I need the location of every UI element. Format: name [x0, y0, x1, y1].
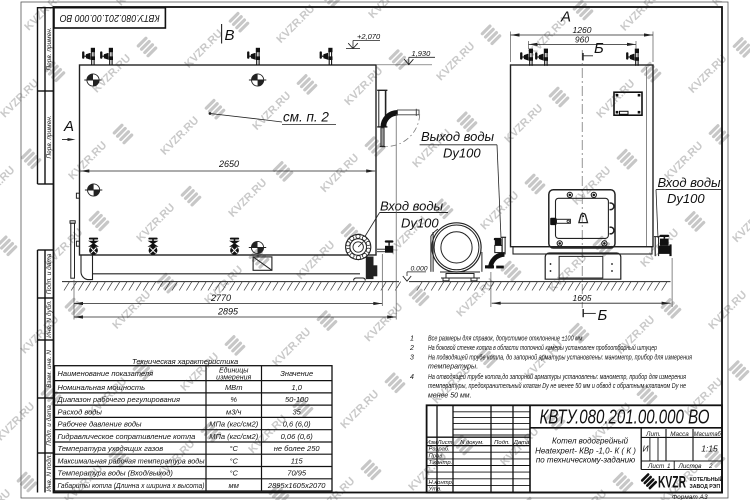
svg-text:1,930: 1,930	[412, 49, 432, 58]
svg-text:КОТЕЛЬНЫЙ: КОТЕЛЬНЫЙ	[690, 475, 724, 483]
svg-text:МПа (кгс/см2): МПа (кгс/см2)	[209, 420, 258, 429]
svg-text:см. п. 2: см. п. 2	[283, 110, 329, 125]
svg-text:Б: Б	[598, 307, 608, 324]
svg-text:115: 115	[291, 456, 304, 465]
svg-text:МПа (кгс/см2): МПа (кгс/см2)	[209, 432, 258, 441]
svg-text:Все размеры для справок, допус: Все размеры для справок, допустимое откл…	[428, 335, 584, 343]
svg-text:0.000: 0.000	[411, 266, 428, 273]
svg-text:70/95: 70/95	[287, 469, 307, 478]
svg-text:Диапазон рабочего регулировани: Диапазон рабочего регулирования	[57, 395, 180, 404]
svg-text:35: 35	[293, 407, 302, 416]
svg-text:0,6 (6,0): 0,6 (6,0)	[283, 420, 311, 429]
svg-text:Рабочее давление воды: Рабочее давление воды	[58, 420, 143, 429]
svg-text:Выход воды: Выход воды	[421, 129, 495, 144]
svg-text:И: И	[642, 444, 649, 454]
svg-text:измерения: измерения	[216, 375, 251, 382]
svg-text:Разраб.: Разраб.	[429, 447, 450, 453]
svg-text:Dy100: Dy100	[443, 146, 481, 161]
svg-text:960: 960	[575, 34, 589, 44]
svg-text:1:15: 1:15	[701, 444, 718, 454]
svg-text:Б: Б	[594, 40, 604, 57]
svg-text:50-100: 50-100	[285, 395, 309, 404]
svg-text:°С: °С	[229, 444, 238, 453]
svg-text:Dy100: Dy100	[401, 216, 439, 231]
svg-text:Пров.: Пров.	[429, 453, 445, 459]
svg-text:менее 50 мм.: менее 50 мм.	[428, 393, 472, 400]
svg-text:Инв. N подл.: Инв. N подл.	[45, 454, 53, 492]
svg-text:Изм: Изм	[426, 440, 437, 446]
svg-text:температуры.: температуры.	[428, 364, 478, 371]
svg-text:Расход воды: Расход воды	[58, 407, 103, 416]
svg-text:Подп.: Подп.	[494, 440, 510, 446]
svg-text:°С: °С	[229, 469, 238, 478]
svg-text:Котел водогрейный: Котел водогрейный	[552, 437, 629, 446]
svg-text:Дата: Дата	[513, 440, 530, 446]
svg-text:мм: мм	[229, 481, 239, 490]
svg-text:Heatexpert- КВр -1,0- К ( К ): Heatexpert- КВр -1,0- К ( К )	[535, 447, 636, 456]
svg-text:Н.контр.: Н.контр.	[429, 480, 454, 486]
svg-text:Инв. N дубл.: Инв. N дубл.	[45, 300, 53, 338]
svg-text:Масса: Масса	[670, 431, 689, 438]
svg-text:На подводящей трубе котла, д: На подводящей трубе котла, до запорной а…	[428, 353, 692, 361]
svg-text:температуры, предохранительный: температуры, предохранительный клапан Dy…	[428, 382, 686, 390]
svg-text:2: 2	[409, 345, 414, 352]
svg-text:Dy100: Dy100	[667, 191, 705, 206]
svg-text:не более 250: не более 250	[274, 444, 321, 453]
svg-text:Техническая характеристика: Техническая характеристика	[132, 357, 238, 366]
svg-text:2895: 2895	[217, 306, 239, 316]
svg-text:KVZR: KVZR	[658, 473, 686, 492]
svg-text:1605: 1605	[573, 293, 592, 303]
svg-text:Максимальная рабочая температу: Максимальная рабочая температура воды	[58, 456, 205, 465]
svg-text:Т.контр.: Т.контр.	[429, 460, 453, 466]
svg-text:Гидравлическое сопративление к: Гидравлическое сопративление котла	[58, 432, 196, 441]
svg-text:2650: 2650	[218, 159, 239, 169]
svg-text:Номинальная мощность: Номинальная мощность	[58, 383, 146, 392]
svg-text:Формат А3: Формат А3	[672, 494, 708, 500]
svg-text:Перв. примен.: Перв. примен.	[46, 27, 53, 70]
svg-text:%: %	[230, 395, 237, 404]
svg-text:Температура уходящих газов: Температура уходящих газов	[58, 444, 164, 453]
svg-text:Наименование показателя: Наименование показателя	[58, 369, 154, 378]
svg-text:2770: 2770	[210, 293, 231, 303]
svg-text:На боковой стенке котла в обла: На боковой стенке котла в области топочн…	[428, 344, 657, 352]
svg-text:1,0: 1,0	[291, 383, 302, 392]
svg-text:ЗАВОД РЭП: ЗАВОД РЭП	[690, 484, 721, 490]
svg-text:Взам. инв. N: Взам. инв. N	[46, 350, 53, 388]
svg-text:КВТУ.080.201.00.000 ВО: КВТУ.080.201.00.000 ВО	[540, 407, 710, 429]
svg-text:Лист: Лист	[437, 440, 453, 446]
svg-text:Подп. и дата: Подп. и дата	[45, 253, 53, 294]
svg-text:МВт: МВт	[225, 383, 243, 392]
svg-text:Значение: Значение	[280, 369, 313, 378]
svg-text:Габариты котла (Длинна х ширин: Габариты котла (Длинна х ширина х высота…	[58, 481, 205, 490]
svg-text:А: А	[560, 9, 571, 26]
svg-text:по техническому-заданию: по техническому-заданию	[536, 456, 635, 465]
svg-text:А: А	[63, 118, 74, 135]
svg-text:0,06 (0,6): 0,06 (0,6)	[281, 432, 314, 441]
svg-text:Единицы: Единицы	[219, 367, 249, 375]
svg-text:КВТУ.080.201.00.000 ВО: КВТУ.080.201.00.000 ВО	[60, 12, 160, 23]
svg-text:м3/ч: м3/ч	[226, 407, 241, 416]
svg-text:3: 3	[410, 354, 414, 361]
svg-text:N докум.: N докум.	[460, 440, 484, 446]
svg-text:4: 4	[410, 374, 414, 381]
svg-text:°С: °С	[229, 456, 238, 465]
svg-text:2895х1605х2070: 2895х1605х2070	[267, 481, 326, 490]
svg-text:Перв. примен.: Перв. примен.	[46, 115, 53, 158]
svg-text:Вход воды: Вход воды	[380, 199, 444, 214]
svg-text:В: В	[225, 27, 235, 44]
svg-text:Подп. и дата: Подп. и дата	[45, 405, 53, 446]
svg-text:Температура воды (Вход/выход): Температура воды (Вход/выход)	[58, 469, 174, 478]
svg-text:Утв.: Утв.	[428, 487, 442, 493]
svg-text:Масштаб: Масштаб	[694, 430, 721, 438]
svg-text:+2,070: +2,070	[357, 32, 381, 41]
svg-text:1: 1	[410, 336, 414, 343]
svg-text:Лит.: Лит.	[645, 431, 661, 438]
svg-text:На отводящей трубе котла,до за: На отводящей трубе котла,до запорной арм…	[428, 373, 686, 381]
svg-text:Вход воды: Вход воды	[658, 175, 722, 190]
